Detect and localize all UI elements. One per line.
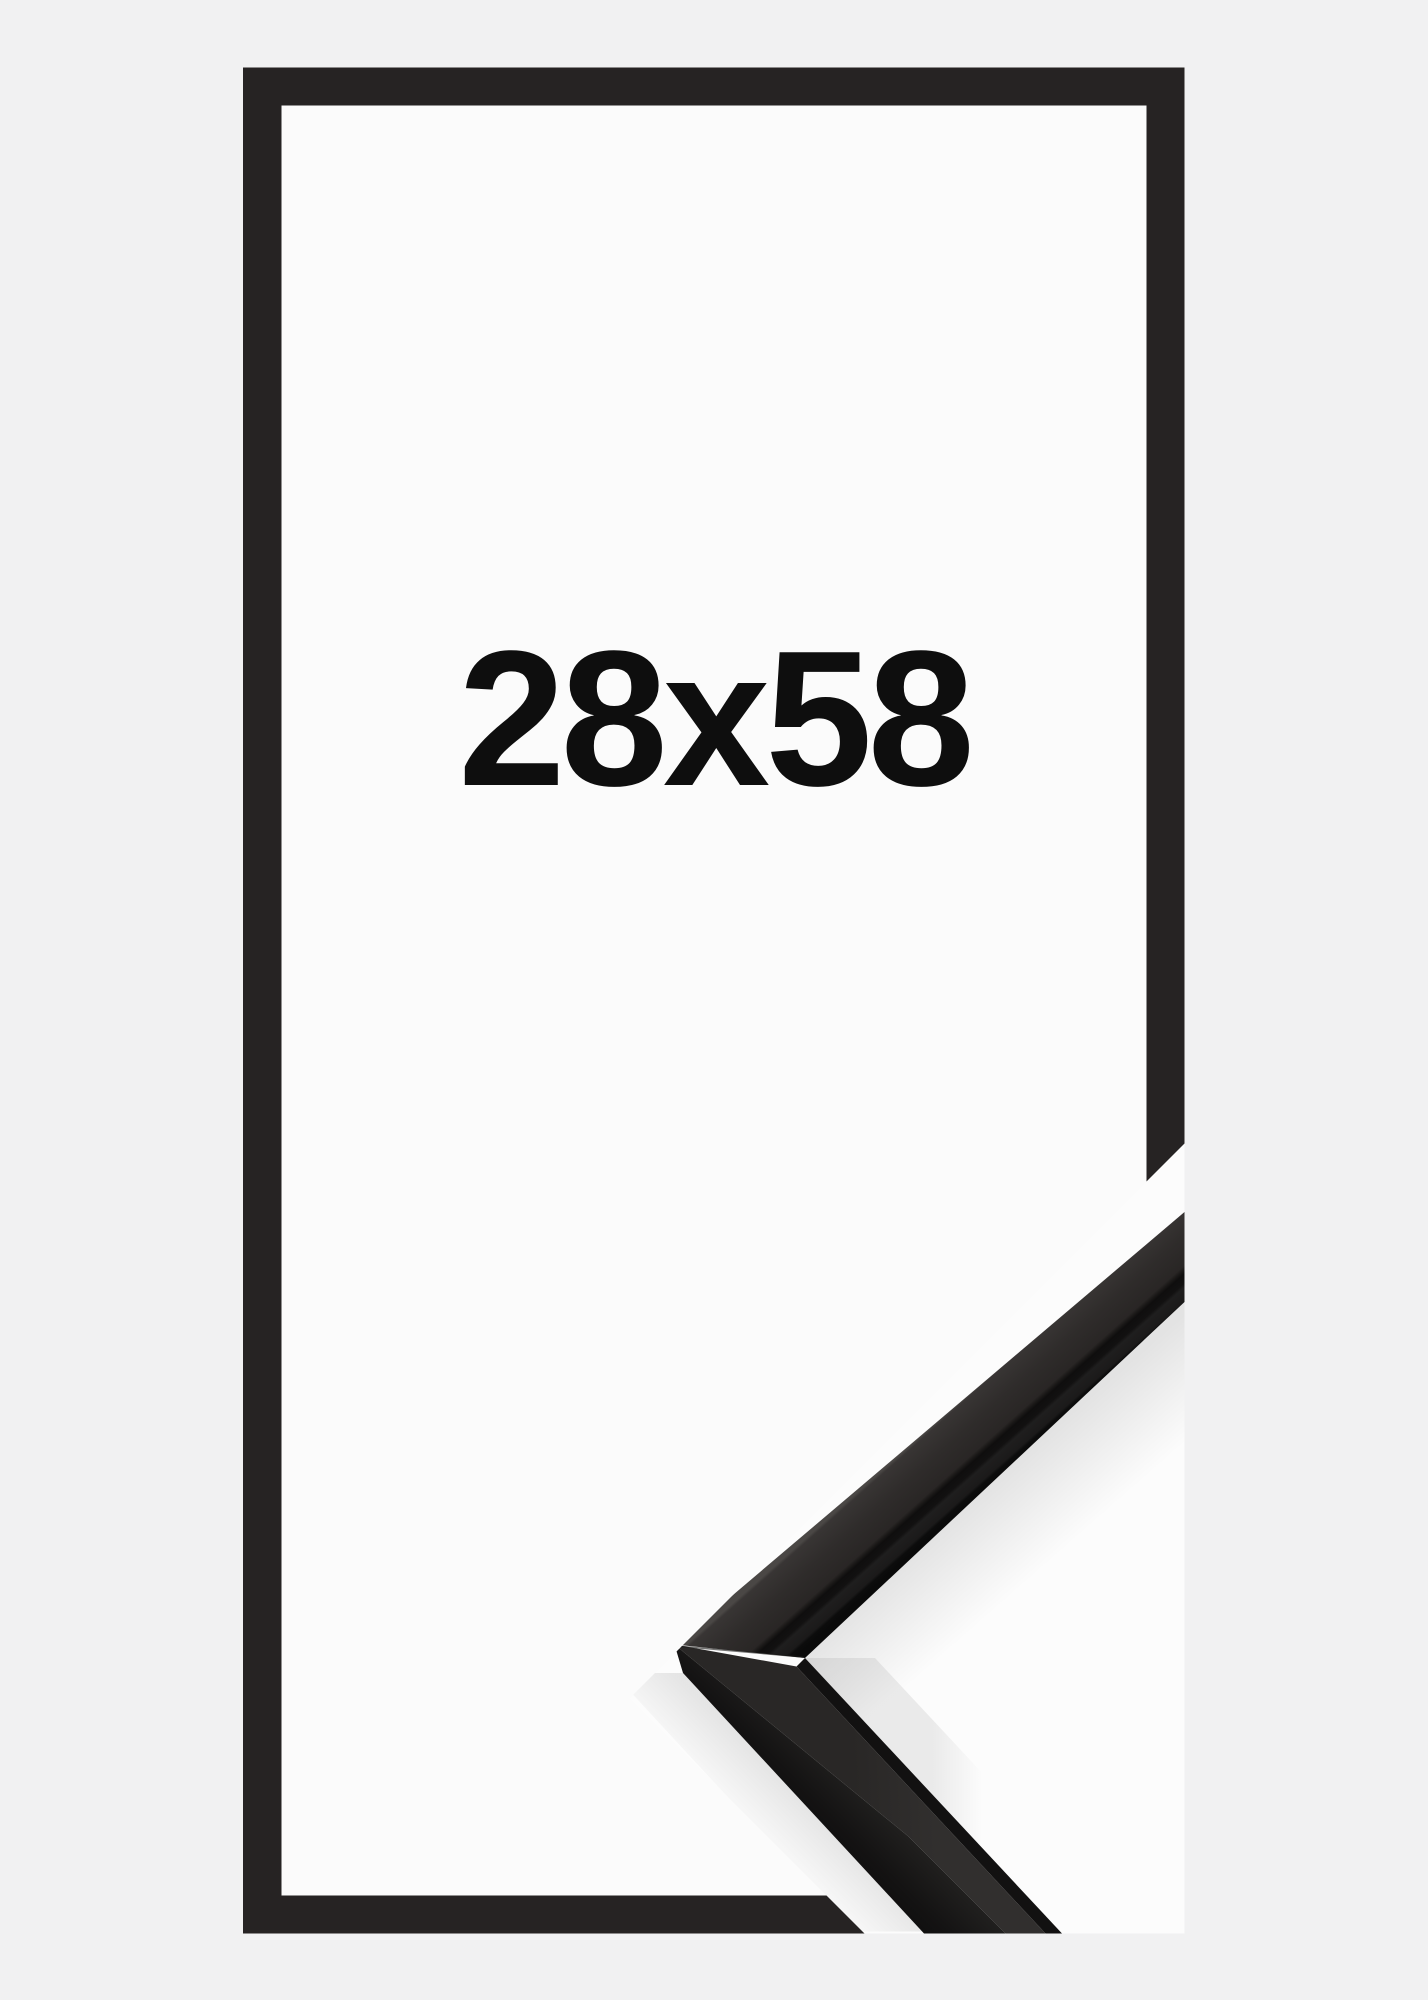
svg-text:28x58: 28x58 (458, 610, 970, 826)
